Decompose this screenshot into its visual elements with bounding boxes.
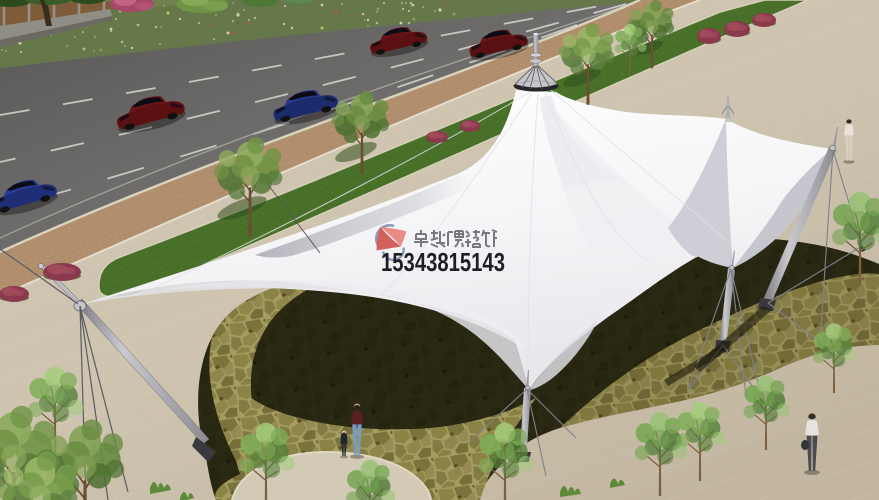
svg-text:15343815143: 15343815143 xyxy=(381,248,505,277)
